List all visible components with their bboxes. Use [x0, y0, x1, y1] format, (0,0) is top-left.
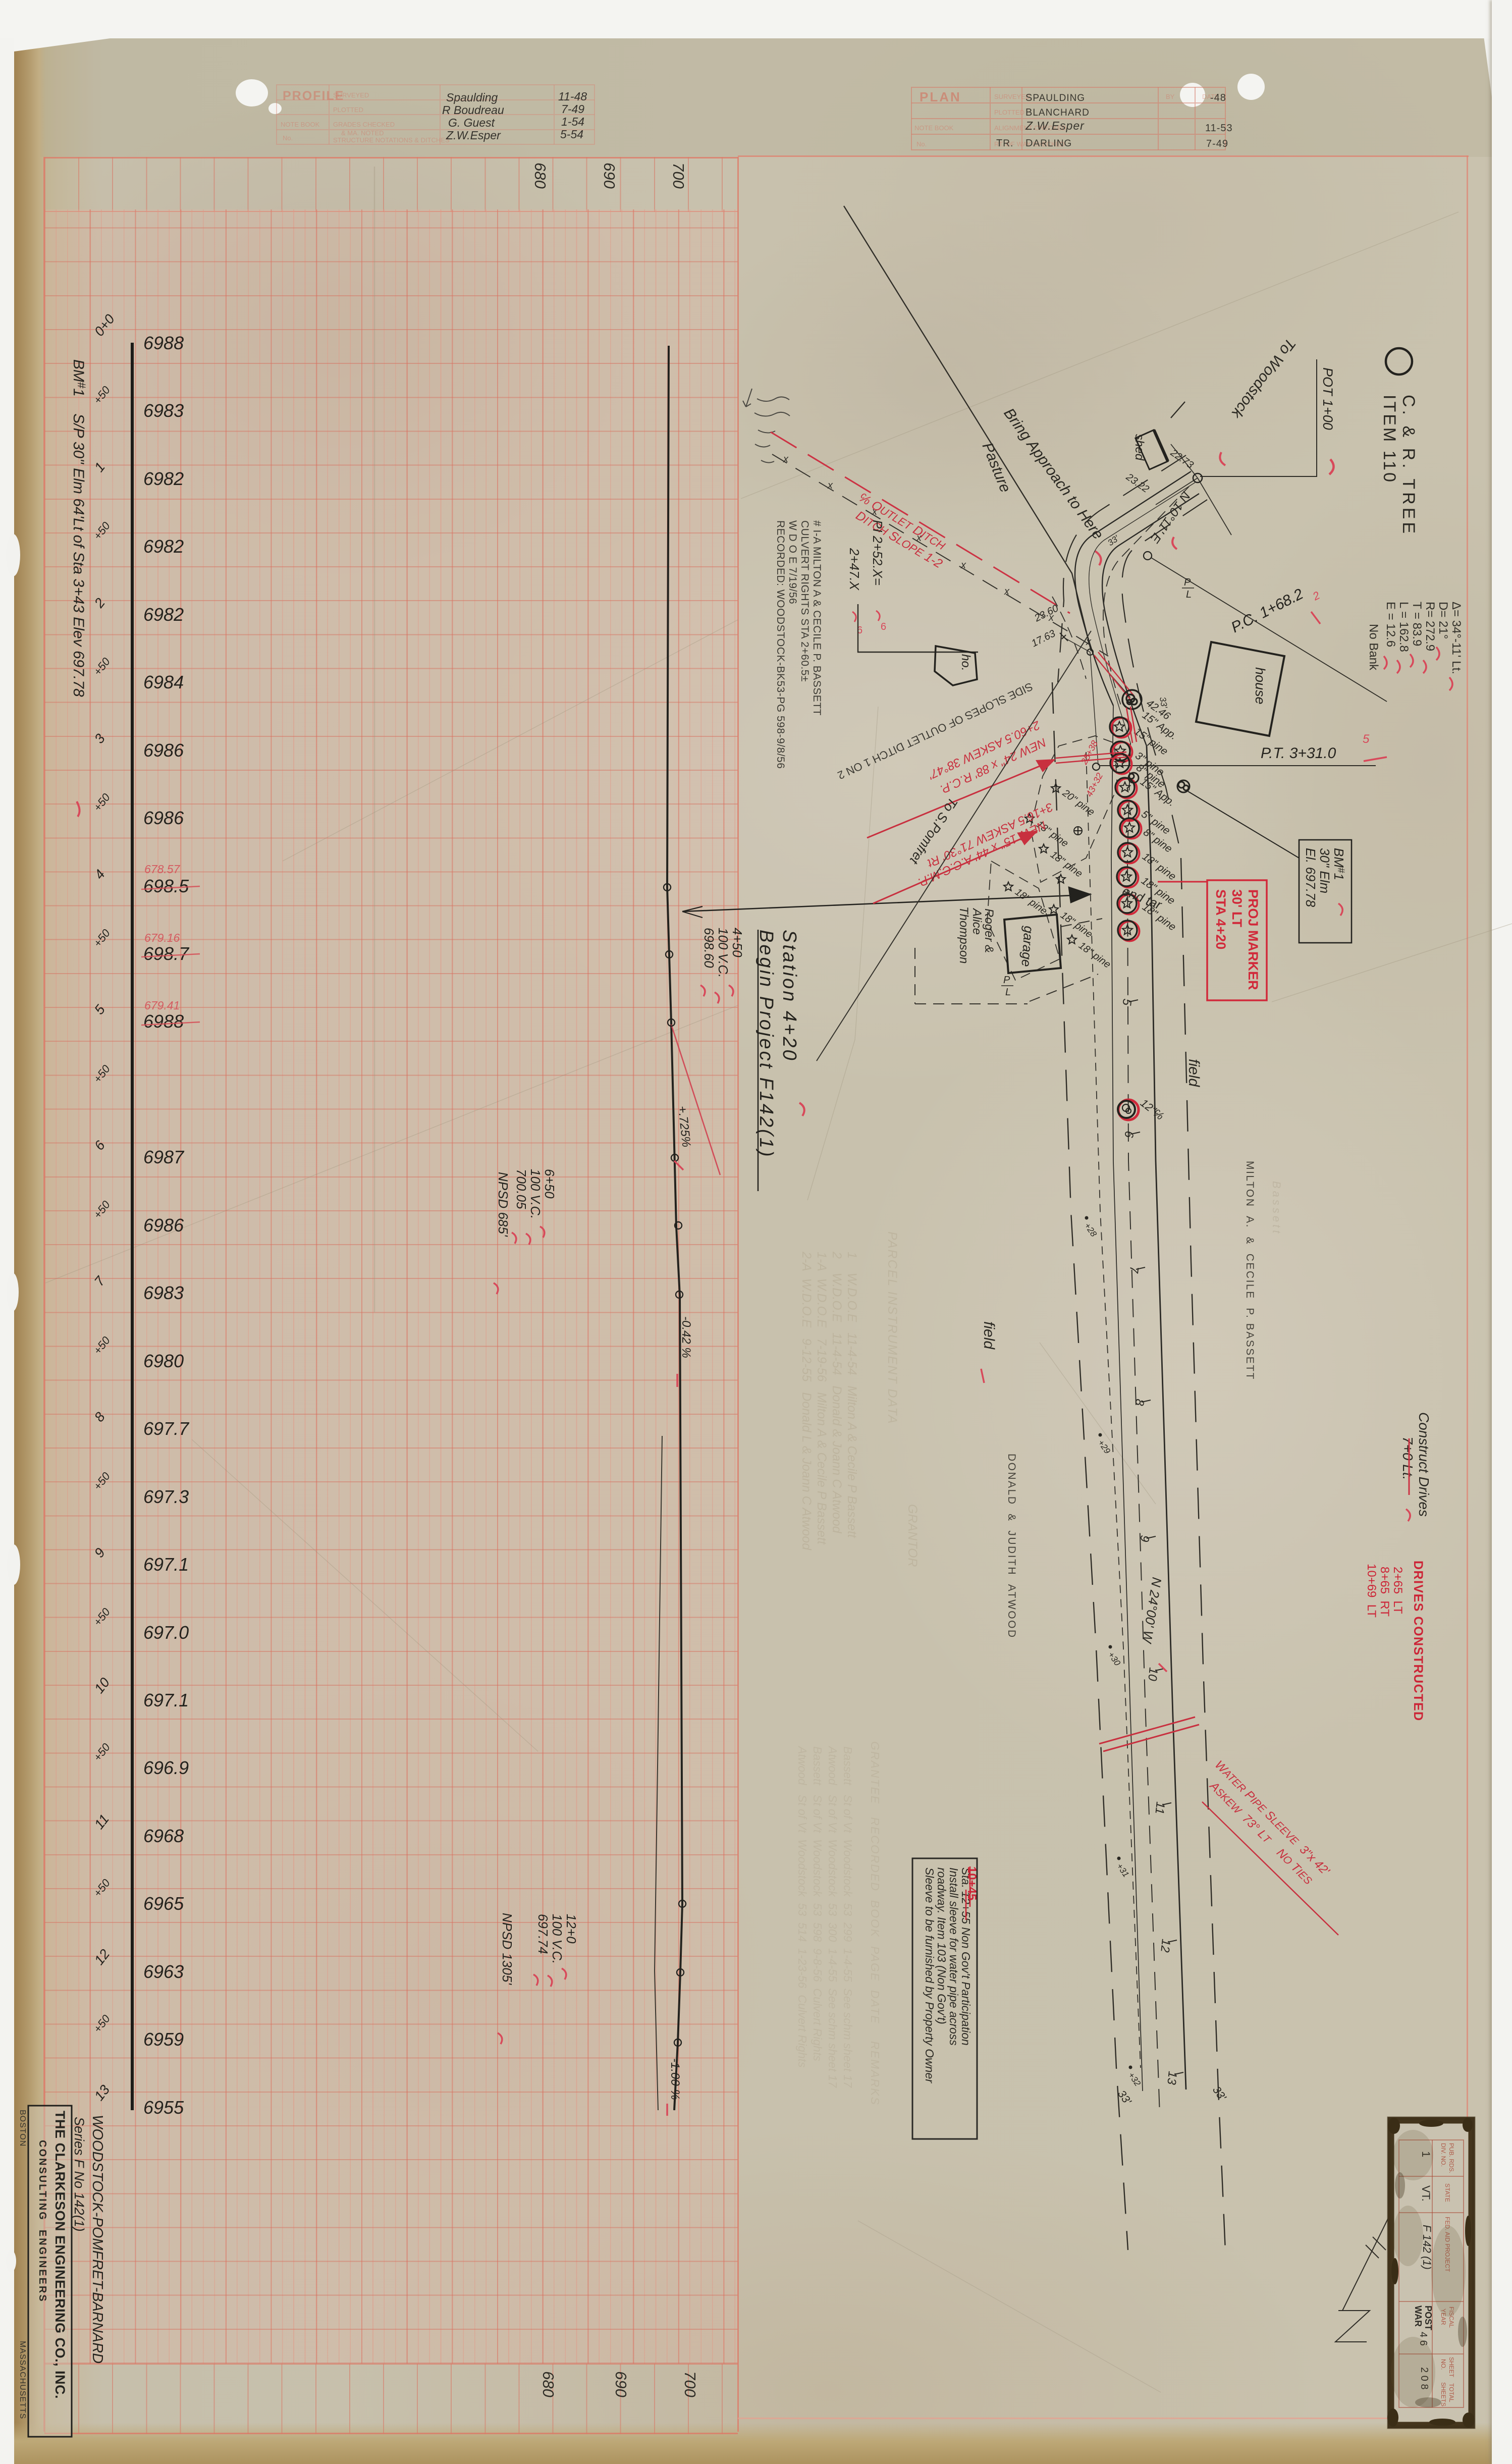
svg-text:DRIVES CONSTRUCTED: DRIVES CONSTRUCTED [1411, 1561, 1425, 1722]
svg-text:6968: 6968 [143, 1826, 184, 1846]
svg-text:R= 272.9: R= 272.9 [1423, 602, 1437, 651]
svg-text:696.9: 696.9 [143, 1757, 189, 1778]
svg-text:Bring Approach to Here: Bring Approach to Here [1000, 405, 1106, 543]
svg-text:NOTE BOOK: NOTE BOOK [914, 124, 954, 132]
svg-text:THE CLARKESON ENGINEERING CO.,: THE CLARKESON ENGINEERING CO., INC. [52, 2111, 68, 2399]
svg-text:3: 3 [91, 731, 108, 746]
svg-text:22.73: 22.73 [1168, 447, 1195, 471]
svg-text:6959: 6959 [143, 2029, 184, 2050]
svg-text:4+50: 4+50 [730, 928, 745, 957]
svg-text:6955: 6955 [143, 2097, 184, 2118]
svg-text:GRANTOR: GRANTOR [905, 1504, 920, 1567]
svg-text:El. 697.78: El. 697.78 [1303, 848, 1318, 907]
svg-text:6: 6 [91, 1138, 108, 1153]
svg-text:6965: 6965 [143, 1893, 184, 1914]
svg-text:Atwood St of Vt Woodstock: Atwood St of Vt Woodstock 53 514 1-23-56… [796, 1745, 809, 2068]
svg-text:5: 5 [1363, 732, 1370, 746]
svg-text:Roger &: Roger & [982, 908, 996, 953]
svg-text:698.7: 698.7 [143, 943, 190, 964]
svg-text:x: x [827, 480, 833, 491]
svg-text:& MA. NOTED: & MA. NOTED [341, 129, 384, 137]
svg-text:Station 4+20: Station 4+20 [779, 930, 800, 1062]
svg-text:10: 10 [91, 1675, 113, 1696]
svg-text:DIV. NO.: DIV. NO. [1440, 2143, 1447, 2167]
svg-text:6982: 6982 [143, 536, 184, 557]
svg-text:ho.: ho. [959, 654, 973, 671]
svg-text:12+0: 12+0 [564, 1914, 579, 1944]
svg-text:7-49: 7-49 [561, 102, 584, 116]
svg-text:WAR: WAR [1413, 2306, 1423, 2327]
svg-text:C. & R. TREE: C. & R. TREE [1399, 395, 1418, 537]
svg-text:30" Elm: 30" Elm [1317, 848, 1332, 893]
svg-text:PARCEL INSTRUMENT DATA: PARCEL INSTRUMENT DATA [885, 1231, 899, 1424]
svg-text:1-54: 1-54 [561, 115, 584, 128]
svg-text:678.57: 678.57 [144, 863, 181, 876]
svg-text:+50: +50 [91, 519, 113, 542]
svg-text:+50: +50 [91, 1605, 113, 1628]
svg-text:MILTON A. & CECILE P. BASS: MILTON A. & CECILE P. BASSETT [1244, 1161, 1256, 1380]
svg-text:6982: 6982 [143, 468, 184, 489]
svg-text:6988: 6988 [143, 333, 184, 353]
svg-text:Sleeve to be furnished by Prop: Sleeve to be furnished by Property Owner [923, 1867, 936, 2083]
svg-text:field: field [981, 1321, 997, 1350]
svg-text:-1.00 %: -1.00 % [668, 2058, 682, 2100]
svg-text:Construct Drives: Construct Drives [1416, 1412, 1432, 1517]
svg-text:DARLING: DARLING [1025, 138, 1072, 149]
svg-text:+50: +50 [91, 2012, 113, 2035]
svg-text:NOTE BOOK: NOTE BOOK [281, 121, 320, 128]
svg-text:697.7: 697.7 [143, 1418, 190, 1439]
svg-text:30' LT: 30' LT [1229, 889, 1245, 927]
svg-text:18" pine: 18" pine [1058, 909, 1095, 940]
svg-text:12: 12 [91, 1947, 113, 1968]
svg-text:CONSULTING ENGINEERS: CONSULTING ENGINEERS [37, 2140, 48, 2303]
svg-text:ITEM 110: ITEM 110 [1380, 395, 1399, 484]
svg-text:POT 1+00: POT 1+00 [1320, 367, 1335, 430]
svg-text:NPSD 685': NPSD 685' [496, 1172, 511, 1237]
svg-text:5-54: 5-54 [560, 128, 583, 141]
svg-text:680: 680 [531, 163, 549, 189]
svg-text:9: 9 [1138, 1534, 1152, 1542]
svg-text:TR.: TR. [996, 138, 1013, 149]
svg-text:12: 12 [1158, 1938, 1173, 1953]
svg-text:6983: 6983 [143, 1282, 184, 1303]
svg-text:BM#1 S/P 30" Elm 64'Lt of S: BM#1 S/P 30" Elm 64'Lt of Sta 3+43 Elev … [70, 359, 88, 697]
svg-text:Δ= 34°-11' Lt.: Δ= 34°-11' Lt. [1449, 602, 1463, 674]
svg-text:Begin Project F142(1): Begin Project F142(1) [755, 930, 777, 1159]
svg-text:7+0 Lt.: 7+0 Lt. [1400, 1436, 1416, 1480]
svg-text:N 24°00' W: N 24°00' W [1139, 1576, 1165, 1645]
svg-text:x: x [960, 560, 966, 571]
svg-text:+50: +50 [91, 1877, 113, 1899]
svg-text:697.1: 697.1 [143, 1690, 189, 1710]
svg-text:2 W.D.O.E 11-4-54 Donal: 2 W.D.O.E 11-4-54 Donald & Joann C Atwoo… [830, 1251, 844, 1534]
svg-text:18" pine: 18" pine [1013, 886, 1049, 917]
svg-text:L: L [1186, 589, 1192, 600]
svg-text:25+38: 25+38 [1078, 739, 1100, 767]
svg-text:TOTAL: TOTAL [1448, 2383, 1455, 2402]
svg-text:2+47.X: 2+47.X [847, 548, 862, 591]
svg-text:2: 2 [91, 595, 108, 611]
svg-text:Install sleeve for water pipe: Install sleeve for water pipe across [947, 1867, 960, 2046]
svg-text:PI 2+52.X=: PI 2+52.X= [870, 520, 885, 585]
svg-text:L = 162.8: L = 162.8 [1397, 602, 1411, 652]
svg-text:shed: shed [1132, 434, 1146, 461]
svg-text:roadway. Item 103 (Non Gov't): roadway. Item 103 (Non Gov't) [935, 1867, 948, 2024]
svg-text:2: 2 [1310, 589, 1322, 603]
svg-text:23.60: 23.60 [1032, 603, 1060, 624]
svg-text:8: 8 [1132, 1398, 1147, 1407]
svg-text:6986: 6986 [143, 808, 184, 828]
svg-text:Bassett: Bassett [1270, 1181, 1283, 1236]
svg-text:STA 4+20: STA 4+20 [1213, 889, 1228, 949]
svg-text:7: 7 [91, 1273, 108, 1289]
svg-text:679.16: 679.16 [144, 931, 180, 944]
svg-text:CULVERT RIGHTS STA 2+60.5±: CULVERT RIGHTS STA 2+60.5± [799, 520, 811, 682]
svg-text:+30: +30 [1106, 1650, 1122, 1668]
svg-text:8+65 RT: 8+65 RT [1378, 1567, 1391, 1617]
svg-text:D= 21°: D= 21° [1436, 602, 1450, 639]
svg-text:No.: No. [916, 140, 927, 148]
svg-text:+28: +28 [1083, 1221, 1099, 1239]
svg-text:No.: No. [283, 134, 293, 142]
svg-text:698.5: 698.5 [143, 876, 189, 896]
svg-text:P: P [1003, 975, 1010, 986]
svg-text:+50: +50 [91, 1198, 113, 1221]
svg-text:697.74: 697.74 [535, 1914, 551, 1954]
svg-text:6+50: 6+50 [542, 1169, 557, 1199]
svg-text:-48: -48 [1210, 92, 1226, 103]
svg-text:1-A W.D.O.E 7-19-56 Milto: 1-A W.D.O.E 7-19-56 Milton A & Cecile P … [815, 1252, 829, 1545]
svg-text:SURVEYED: SURVEYED [994, 93, 1030, 100]
svg-text:17.63: 17.63 [1030, 628, 1057, 649]
svg-text:house: house [1253, 667, 1268, 705]
svg-text:0+0: 0+0 [91, 311, 118, 339]
svg-text:679.41: 679.41 [144, 999, 180, 1012]
svg-text:6987: 6987 [143, 1147, 185, 1167]
svg-text:1 W.D.O.E 11-4-54 Milto: 1 W.D.O.E 11-4-54 Milton A & Cecile P Ba… [845, 1252, 859, 1538]
svg-text:NPSD 1305': NPSD 1305' [500, 1913, 515, 1985]
svg-text:T = 83.9: T = 83.9 [1410, 602, 1424, 646]
svg-text:+50: +50 [91, 655, 113, 678]
svg-text:R Boudreau: R Boudreau [442, 103, 504, 117]
svg-text:Alice: Alice [970, 907, 984, 935]
svg-text:6980: 6980 [143, 1351, 184, 1371]
svg-text:12"℅: 12"℅ [1138, 1096, 1166, 1122]
svg-text:E = 12.6: E = 12.6 [1384, 602, 1397, 647]
svg-text:W D O E 7/19/56: W D O E 7/19/56 [787, 520, 798, 604]
svg-text:9: 9 [91, 1545, 108, 1560]
svg-text:6983: 6983 [143, 400, 184, 421]
svg-text:STATE: STATE [1444, 2183, 1451, 2202]
svg-text:+32: +32 [1126, 2070, 1143, 2088]
svg-text:P: P [1184, 577, 1191, 588]
svg-text:18" pine: 18" pine [1076, 940, 1113, 971]
svg-text:100 V.C.: 100 V.C. [716, 928, 731, 978]
svg-text:+50: +50 [91, 1741, 113, 1763]
svg-text:GRADES CHECKED: GRADES CHECKED [333, 121, 395, 128]
svg-text:11: 11 [91, 1811, 112, 1832]
svg-text:Bassett St of Vt Woodstock: Bassett St of Vt Woodstock 53 299 1-4-55… [841, 1746, 854, 2088]
svg-text:4: 4 [91, 867, 108, 882]
svg-text:100 V.C.: 100 V.C. [528, 1169, 543, 1219]
svg-text:x: x [783, 454, 789, 465]
svg-text:23.22: 23.22 [1123, 471, 1151, 495]
svg-text:SPAULDING: SPAULDING [1025, 92, 1085, 103]
svg-text:+50: +50 [91, 1062, 113, 1085]
svg-text:RECORDED: WOODSTOCK-BK53-PG 59: RECORDED: WOODSTOCK-BK53-PG 598-9/8/56 [775, 520, 786, 769]
svg-text:PUB. RDS.: PUB. RDS. [1448, 2143, 1455, 2173]
svg-text:x: x [1004, 586, 1010, 597]
svg-text:10: 10 [1145, 1667, 1160, 1682]
svg-text:697.3: 697.3 [143, 1486, 189, 1507]
svg-text:10+69 LT: 10+69 LT [1365, 1564, 1378, 1618]
svg-text:Z.W.Esper: Z.W.Esper [1025, 119, 1085, 132]
svg-text:N 10°11' E: N 10°11' E [1148, 489, 1193, 546]
svg-text:2-A W.D.O.E 9-12-55 Donal: 2-A W.D.O.E 9-12-55 Donald L & Joann C A… [799, 1251, 814, 1550]
svg-text:698.60: 698.60 [701, 928, 717, 968]
svg-text:STRUCTURE NOTATIONS & DITCHES: STRUCTURE NOTATIONS & DITCHES [333, 136, 450, 144]
svg-text:MASSACHUSETTS: MASSACHUSETTS [18, 2341, 27, 2419]
svg-text:WATER PIPE SLEEVE 3"x 42': WATER PIPE SLEEVE 3"x 42' [1212, 1758, 1333, 1879]
svg-text:PROJ MARKER: PROJ MARKER [1246, 889, 1261, 990]
svg-text:100 V.C.: 100 V.C. [550, 1914, 565, 1964]
svg-text:11-48: 11-48 [558, 90, 587, 103]
svg-text:+50: +50 [91, 1334, 113, 1357]
svg-text:Bassett St of Vt Woodstock: Bassett St of Vt Woodstock 53 598 9-8-56… [811, 1746, 824, 2061]
svg-text:DONALD & JUDITH ATWOOD: DONALD & JUDITH ATWOOD [1006, 1454, 1017, 1639]
svg-text:680: 680 [539, 2371, 557, 2397]
svg-text:ASKEW 73° LT NO TIES: ASKEW 73° LT NO TIES [1206, 1779, 1315, 1888]
svg-text:+50: +50 [91, 927, 113, 949]
svg-text:+31: +31 [1115, 1861, 1131, 1879]
svg-text:BM#1: BM#1 [1331, 848, 1346, 880]
svg-text:11-53: 11-53 [1205, 123, 1233, 134]
svg-text:+50: +50 [91, 1470, 113, 1492]
svg-text:690: 690 [601, 163, 618, 189]
svg-text:10+45: 10+45 [965, 1866, 979, 1900]
svg-text:field: field [1185, 1059, 1202, 1087]
svg-text:Pasture: Pasture [979, 440, 1014, 495]
svg-text:7-49: 7-49 [1206, 138, 1228, 149]
svg-text:Thompson: Thompson [957, 906, 970, 963]
svg-text:33': 33' [1210, 2084, 1229, 2103]
svg-text:+50: +50 [91, 384, 113, 406]
svg-text:SURVEYED: SURVEYED [333, 91, 369, 99]
svg-text:8: 8 [91, 1409, 108, 1424]
svg-text:WOODSTOCK-POMFRET-BARNARD: WOODSTOCK-POMFRET-BARNARD [89, 2115, 105, 2364]
svg-text:SHEET: SHEET [1448, 2357, 1455, 2378]
svg-text:NO.: NO. [1440, 2359, 1447, 2370]
svg-text:BOSTON: BOSTON [18, 2110, 27, 2147]
svg-text:2+65 LT: 2+65 LT [1391, 1567, 1405, 1614]
svg-text:BY: BY [1166, 93, 1175, 100]
svg-text:-0.42 %: -0.42 % [679, 1316, 693, 1358]
svg-text:PLOTTED: PLOTTED [333, 106, 363, 114]
svg-text:L: L [1005, 987, 1011, 998]
svg-text:690: 690 [612, 2371, 630, 2397]
svg-text:VT.: VT. [1420, 2185, 1432, 2202]
svg-text:700: 700 [681, 2371, 699, 2397]
svg-text:POST: POST [1423, 2306, 1433, 2330]
svg-text:700.05: 700.05 [514, 1169, 529, 1209]
svg-text:7: 7 [1126, 1265, 1141, 1274]
svg-text:6: 6 [1122, 1130, 1136, 1139]
svg-text:P.T. 3+31.0: P.T. 3+31.0 [1261, 745, 1336, 762]
svg-text:PLOTTED: PLOTTED [994, 109, 1024, 116]
svg-text:6986: 6986 [143, 1215, 184, 1236]
svg-text:13: 13 [1164, 2070, 1179, 2085]
svg-text:Z.W.Esper: Z.W.Esper [446, 129, 501, 142]
svg-text:1: 1 [91, 459, 108, 474]
svg-text:To Woodstock: To Woodstock [1227, 335, 1299, 422]
svg-text:11: 11 [1152, 1801, 1167, 1815]
svg-text:GRANTEE RECORDED BOOK PAGE: GRANTEE RECORDED BOOK PAGE DATE REMARKS [869, 1741, 882, 2106]
svg-text:Series F No 142(1): Series F No 142(1) [72, 2117, 87, 2232]
svg-text:697.1: 697.1 [143, 1554, 189, 1575]
svg-text:6963: 6963 [143, 1961, 184, 1982]
svg-text:G. Guest: G. Guest [448, 116, 496, 129]
svg-text:6982: 6982 [143, 604, 184, 625]
svg-text:+50: +50 [91, 791, 113, 814]
svg-text:+.725%: +.725% [675, 1105, 693, 1148]
svg-text:13: 13 [91, 2082, 113, 2104]
svg-text:6988: 6988 [143, 1011, 184, 1032]
svg-text:6986: 6986 [143, 740, 184, 761]
svg-text:700: 700 [670, 163, 687, 189]
svg-text:Spaulding: Spaulding [446, 91, 498, 104]
svg-text:No Bank: No Bank [1367, 624, 1380, 671]
svg-text:garage: garage [1018, 926, 1037, 968]
svg-text:6984: 6984 [143, 672, 184, 692]
svg-text:697.0: 697.0 [143, 1622, 189, 1643]
svg-text:6: 6 [881, 621, 886, 632]
svg-text:5: 5 [91, 1002, 108, 1017]
svg-text:BLANCHARD: BLANCHARD [1025, 107, 1090, 118]
svg-text:Atwood St of Vt Woodstock: Atwood St of Vt Woodstock 53 300 1-4-55 … [826, 1745, 839, 2088]
svg-text:5: 5 [1120, 998, 1134, 1006]
svg-text:# I-A MILTON A & CECILE P: # I-A MILTON A & CECILE P. BASSETT [811, 520, 823, 716]
svg-text:PLAN: PLAN [920, 89, 961, 104]
